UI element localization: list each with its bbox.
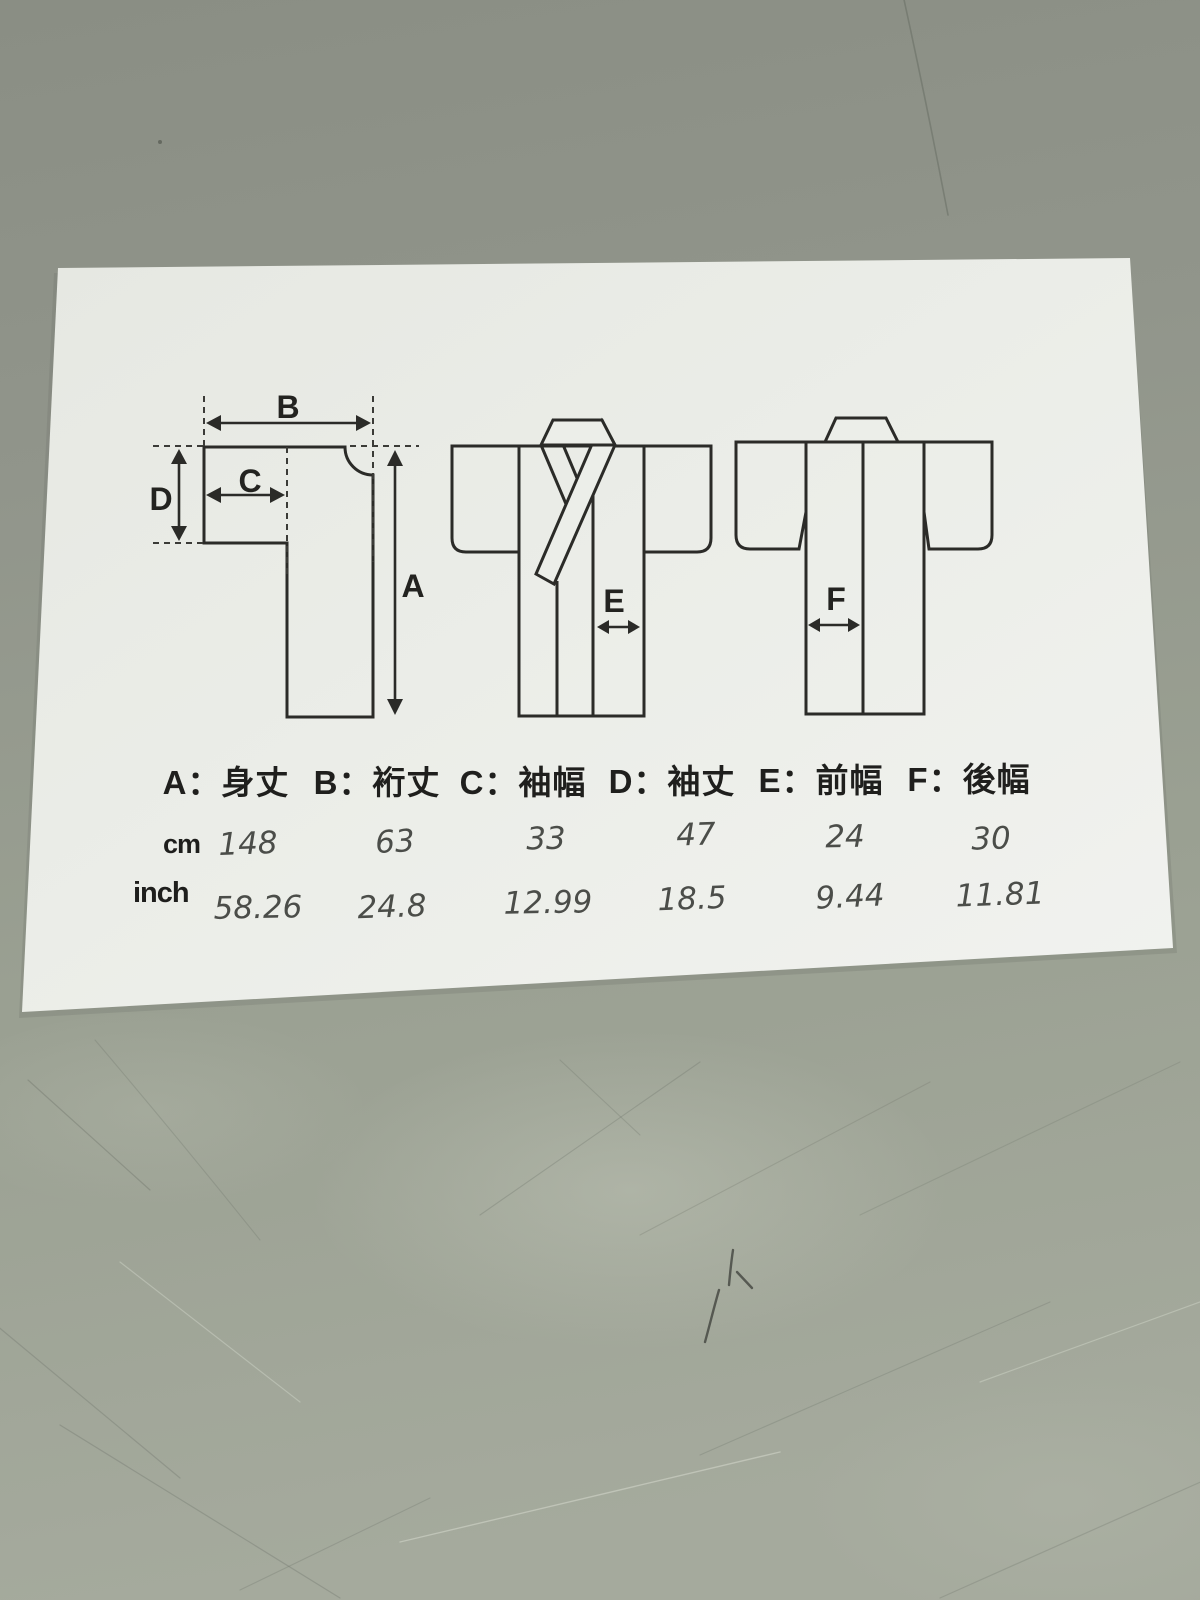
row-inch: inch 58.26 24.8 12.99 18.5 9.44 11.81: [0, 0, 1200, 1600]
value-inch-B: 24.8: [357, 891, 427, 924]
unit-label-inch: inch: [133, 879, 189, 908]
value-inch-A: 58.26: [213, 892, 302, 925]
value-inch-E: 9.44: [815, 880, 886, 915]
value-inch-C: 12.99: [503, 887, 592, 920]
photo-of-kimono-size-sheet: B C D A E: [0, 0, 1200, 1600]
value-inch-F: 11.81: [955, 878, 1045, 912]
value-inch-D: 18.5: [657, 883, 727, 916]
